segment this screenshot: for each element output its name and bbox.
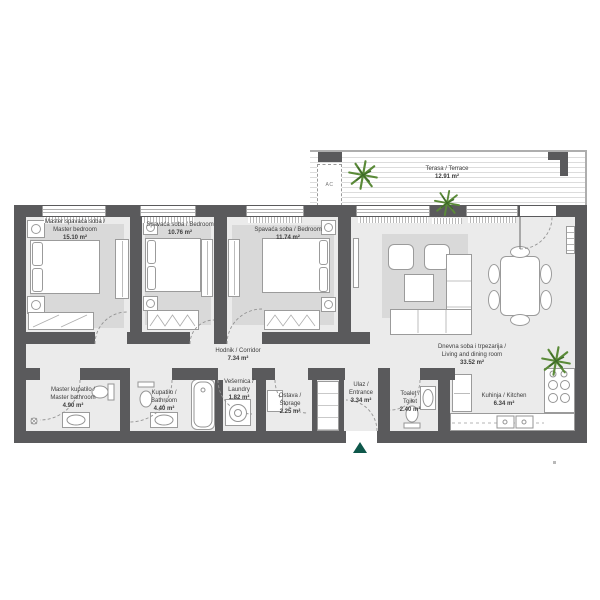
window-sill-hatch xyxy=(358,217,428,223)
room-name: Ostava / xyxy=(279,392,301,400)
ac-unit-label: AC xyxy=(326,182,334,188)
room-area: 11.74 m² xyxy=(254,234,321,242)
room-label-laundry: Vešernica / Laundry 1.82 m² xyxy=(224,378,254,402)
lamp xyxy=(324,223,333,232)
room-label-entrance: Ulaz / Entrance 3.34 m² xyxy=(349,381,373,405)
room-label-toilet: Toalet / Toilet 2.40 m² xyxy=(400,390,421,414)
pouf xyxy=(388,244,414,270)
entrance-marker-triangle xyxy=(353,442,367,453)
wardrobe xyxy=(201,239,213,297)
room-area: 10.76 m² xyxy=(146,229,213,237)
sofa-seat xyxy=(390,309,472,335)
room-name: Spavaća soba / Bedroom xyxy=(254,226,321,234)
wall xyxy=(312,380,317,431)
washbasin xyxy=(150,412,178,428)
dining-chair xyxy=(540,290,552,310)
room-name: Living and dining room xyxy=(438,351,506,359)
pillow xyxy=(319,267,328,292)
room-name: Hodnik / Corridor xyxy=(215,347,260,355)
room-name: Terasa / Terrace xyxy=(426,165,469,173)
wall xyxy=(127,332,190,344)
room-name: Kuhinja / Kitchen xyxy=(481,392,526,400)
room-label-living-room: Dnevna soba i trpezarija / Living and di… xyxy=(438,343,506,367)
lamp xyxy=(31,224,41,234)
window xyxy=(140,206,196,216)
floor-plan: AC xyxy=(0,0,600,600)
pillow xyxy=(147,240,156,264)
room-name: Ulaz / xyxy=(349,381,373,389)
room-area: 1.82 m² xyxy=(224,394,254,402)
kitchen-counter-bottom xyxy=(450,413,575,431)
room-label-kitchen: Kuhinja / Kitchen 6.34 m² xyxy=(481,392,526,408)
room-label-terrace: Terasa / Terrace 12.91 m² xyxy=(426,165,469,181)
wardrobe xyxy=(115,239,129,299)
bathtub xyxy=(191,379,215,430)
window-sill-hatch xyxy=(248,217,302,223)
room-name: Vešernica / xyxy=(224,378,254,386)
page-mark xyxy=(553,461,556,464)
terrace-railing-top xyxy=(310,150,587,152)
wardrobe xyxy=(228,239,240,297)
wall xyxy=(26,332,95,344)
entrance-door-opening xyxy=(346,431,377,443)
terrace-wall-block xyxy=(318,152,342,162)
room-name: Master kupatilo / xyxy=(50,386,95,394)
coffee-table xyxy=(404,274,434,302)
washbasin xyxy=(62,412,90,428)
wall xyxy=(378,368,390,431)
room-label-storage: Ostava / Storage 2.25 m² xyxy=(279,392,301,416)
room-label-bedroom2: Spavaća soba / Bedroom 10.76 m² xyxy=(146,221,213,237)
wall xyxy=(80,368,130,380)
room-area: 2.25 m² xyxy=(279,408,301,416)
room-area: 12.91 m² xyxy=(426,173,469,181)
kitchen-counter-right xyxy=(544,368,575,413)
room-label-bedroom3: Spavaća soba / Bedroom 11.74 m² xyxy=(254,226,321,242)
wall xyxy=(214,332,227,344)
lamp xyxy=(146,299,155,308)
wall xyxy=(130,217,142,332)
room-area: 2.40 m² xyxy=(400,406,421,414)
room-name: Master bedroom xyxy=(45,226,105,234)
pillow xyxy=(32,242,43,266)
wall xyxy=(120,380,130,431)
room-name: Toalet / xyxy=(400,390,421,398)
room-name: Entrance xyxy=(349,389,373,397)
room-name: Master spavaća soba / xyxy=(45,218,105,226)
tv-panel xyxy=(353,238,359,288)
room-label-master-bedroom: Master spavaća soba / Master bedroom 15.… xyxy=(45,218,105,242)
window xyxy=(42,206,106,216)
window-sill-hatch xyxy=(468,217,516,223)
dining-chair xyxy=(488,290,500,310)
washbasin xyxy=(420,386,436,410)
wall xyxy=(214,217,227,332)
room-name: Laundry xyxy=(224,386,254,394)
room-name: Toilet xyxy=(400,398,421,406)
room-name: Kupatilo / xyxy=(151,389,177,397)
wall xyxy=(338,217,351,332)
dining-chair xyxy=(540,264,552,284)
ac-unit: AC xyxy=(317,164,342,206)
room-label-master-bathroom: Master kupatilo / Master bathroom 4.90 m… xyxy=(50,386,95,410)
room-name: Dnevna soba i trpezarija / xyxy=(438,343,506,351)
lamp xyxy=(31,300,41,310)
entry-closet xyxy=(317,381,339,431)
terrace-door-opening xyxy=(520,206,556,216)
washing-machine xyxy=(225,399,251,426)
dining-chair xyxy=(488,264,500,284)
room-area: 33.52 m² xyxy=(438,359,506,367)
room-name: Storage xyxy=(279,400,301,408)
room-label-bathroom: Kupatilo / Bathroom 4.40 m² xyxy=(151,389,177,413)
window-sill-hatch xyxy=(432,218,462,224)
dining-chair xyxy=(510,246,530,258)
wall xyxy=(252,368,275,380)
wall xyxy=(420,368,455,380)
wall-outer-left xyxy=(14,205,26,443)
room-name: Master bathroom xyxy=(50,394,95,402)
room-area: 15.10 m² xyxy=(45,234,105,242)
bench xyxy=(264,310,320,330)
wall xyxy=(308,368,345,380)
window xyxy=(356,206,430,216)
window xyxy=(466,206,518,216)
room-area: 3.34 m² xyxy=(349,397,373,405)
dining-table xyxy=(500,256,540,316)
room-area: 4.40 m² xyxy=(151,405,177,413)
wall xyxy=(256,380,266,431)
wall xyxy=(262,332,338,344)
wall-outer-bottom xyxy=(14,431,587,443)
lamp xyxy=(324,300,333,309)
room-area: 4.90 m² xyxy=(50,402,95,410)
room-label-corridor: Hodnik / Corridor 7.34 m² xyxy=(215,347,260,363)
room-name: Spavaća soba / Bedroom xyxy=(146,221,213,229)
wall xyxy=(339,380,344,431)
terrace-corner-wall-v xyxy=(560,152,568,176)
fridge xyxy=(452,374,472,412)
radiator xyxy=(566,226,575,254)
wall xyxy=(338,332,370,344)
window xyxy=(246,206,304,216)
room-name: Bathroom xyxy=(151,397,177,405)
dresser xyxy=(28,312,94,330)
pillow xyxy=(147,266,156,290)
dining-chair xyxy=(510,314,530,326)
pillow xyxy=(319,240,328,265)
wall xyxy=(172,368,218,380)
bench xyxy=(147,310,199,330)
wall-outer-right xyxy=(575,205,587,443)
pillow xyxy=(32,268,43,292)
wall xyxy=(215,380,223,431)
room-area: 6.34 m² xyxy=(481,400,526,408)
wall xyxy=(26,368,40,380)
room-area: 7.34 m² xyxy=(215,355,260,363)
terrace-railing-right xyxy=(585,150,587,205)
